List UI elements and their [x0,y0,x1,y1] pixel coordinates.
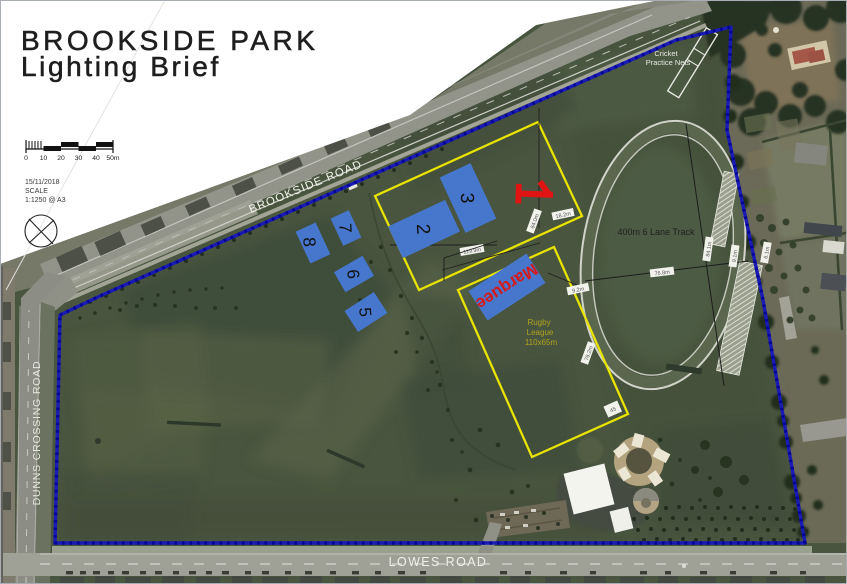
svg-text:8: 8 [299,237,319,248]
svg-text:20: 20 [57,155,65,162]
svg-text:2: 2 [412,223,434,235]
svg-text:Practice Nets: Practice Nets [646,58,691,67]
svg-text:LOWES ROAD: LOWES ROAD [389,555,488,569]
svg-text:Rugby: Rugby [527,318,550,327]
svg-text:Lighting Brief: Lighting Brief [21,51,221,82]
svg-text:400m 6 Lane Track: 400m 6 Lane Track [617,227,695,237]
svg-text:40: 40 [92,155,100,162]
svg-text:0: 0 [24,155,28,162]
svg-text:110x65m: 110x65m [525,338,558,347]
svg-text:10: 10 [40,155,48,162]
svg-text:6: 6 [343,269,363,280]
svg-text:SCALE: SCALE [25,188,48,195]
svg-text:Cricket: Cricket [654,49,678,58]
svg-text:DUNNS CROSSING ROAD: DUNNS CROSSING ROAD [31,361,43,506]
svg-text:League: League [527,328,554,337]
svg-text:50m: 50m [106,155,120,162]
svg-text:15/11/2018: 15/11/2018 [25,179,60,186]
svg-text:30: 30 [75,155,83,162]
svg-text:7: 7 [335,223,355,234]
svg-text:3: 3 [456,192,478,204]
svg-text:5: 5 [355,307,375,318]
svg-text:1:1250 @ A3: 1:1250 @ A3 [25,197,66,204]
